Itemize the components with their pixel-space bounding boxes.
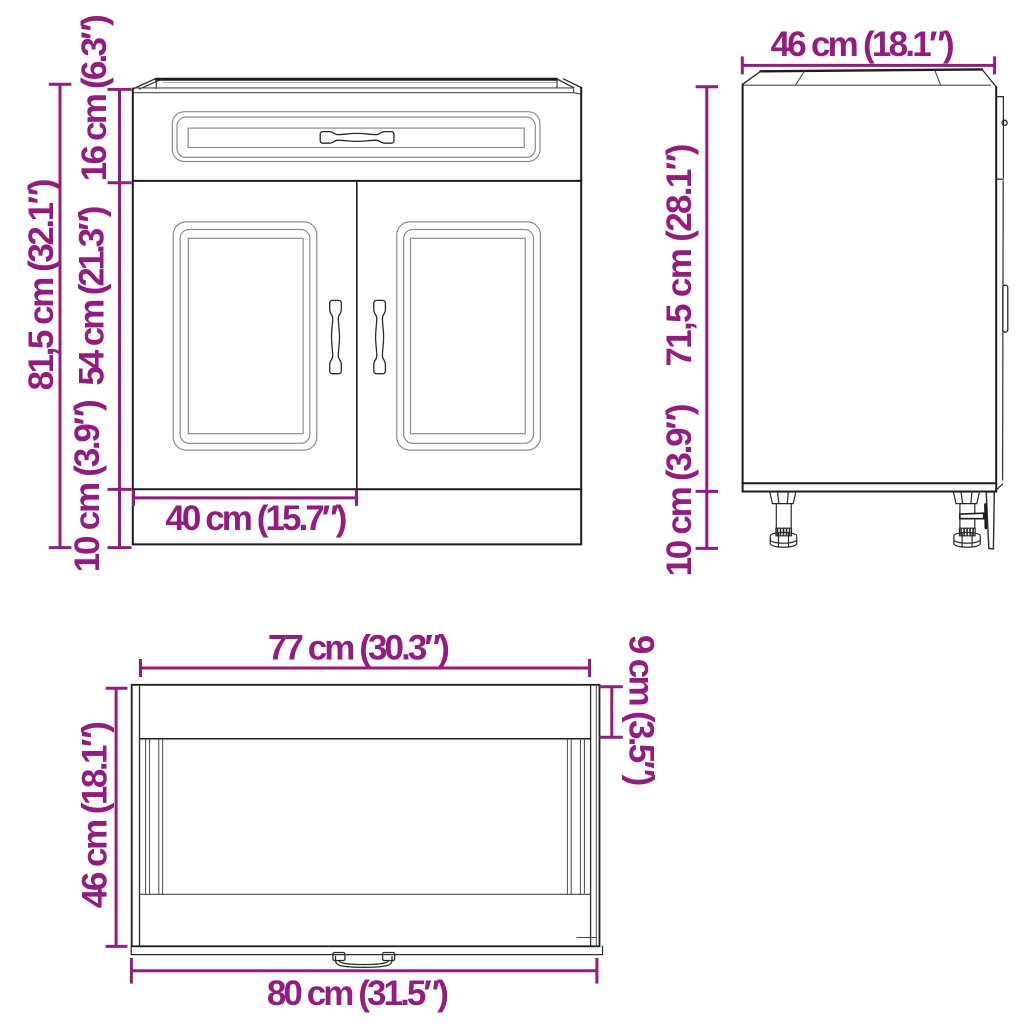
svg-text:81,5 cm (32.1″): 81,5 cm (32.1″) [22, 178, 61, 390]
svg-text:46 cm (18.1″): 46 cm (18.1″) [771, 25, 955, 64]
svg-text:77 cm (30.3″): 77 cm (30.3″) [268, 629, 450, 668]
svg-text:71,5 cm (28.1″): 71,5 cm (28.1″) [660, 144, 699, 367]
svg-text:9 cm (3.5″): 9 cm (3.5″) [621, 635, 660, 786]
svg-text:10 cm (3.9″): 10 cm (3.9″) [68, 399, 107, 572]
svg-text:40 cm (15.7″): 40 cm (15.7″) [165, 499, 347, 538]
svg-text:54 cm (21.3″): 54 cm (21.3″) [73, 206, 112, 386]
svg-text:16 cm (6.3″): 16 cm (6.3″) [75, 14, 114, 181]
svg-text:46 cm (18.1″): 46 cm (18.1″) [76, 721, 115, 908]
svg-text:80 cm (31.5″): 80 cm (31.5″) [267, 974, 449, 1013]
svg-text:10 cm (3.9″): 10 cm (3.9″) [660, 404, 699, 577]
